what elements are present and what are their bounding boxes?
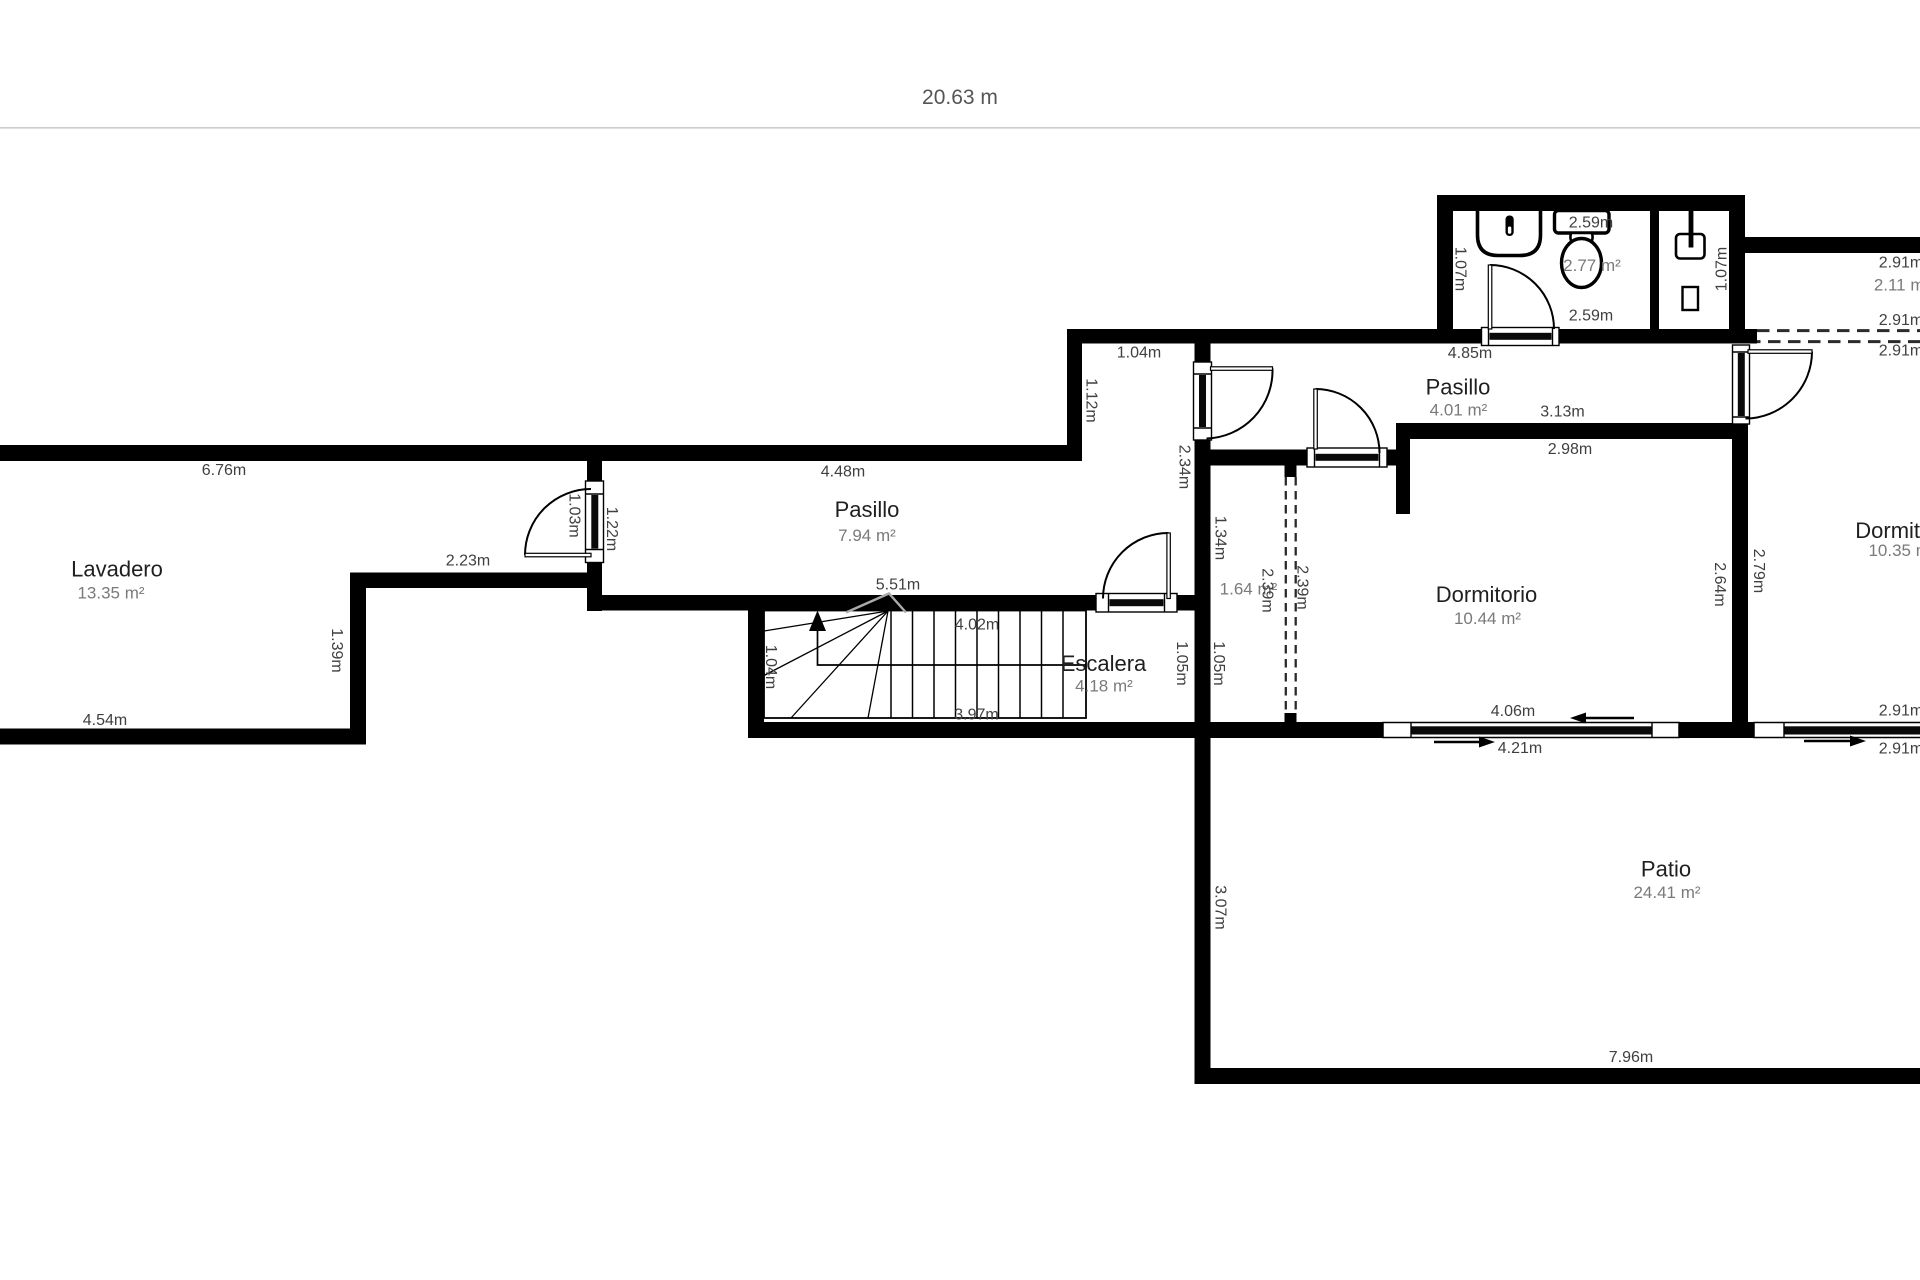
svg-text:1.07m: 1.07m xyxy=(1714,247,1731,291)
svg-text:5.51m: 5.51m xyxy=(876,577,920,594)
svg-text:20.63 m: 20.63 m xyxy=(922,86,998,109)
svg-text:1.03m: 1.03m xyxy=(566,493,583,537)
svg-text:Dormitorio: Dormitorio xyxy=(1436,582,1537,607)
svg-text:4.18 m²: 4.18 m² xyxy=(1075,677,1133,696)
svg-text:4.54m: 4.54m xyxy=(83,712,127,729)
svg-text:Pasillo: Pasillo xyxy=(1426,375,1491,400)
svg-text:10.35 m²: 10.35 m² xyxy=(1868,541,1920,560)
svg-text:Escalera: Escalera xyxy=(1061,651,1147,676)
svg-text:2.64m: 2.64m xyxy=(1711,562,1728,606)
svg-text:1.07m: 1.07m xyxy=(1452,247,1469,291)
svg-text:2.91m: 2.91m xyxy=(1879,312,1920,329)
svg-text:4.02m: 4.02m xyxy=(955,617,999,634)
svg-text:4.21m: 4.21m xyxy=(1498,740,1542,757)
svg-text:1.05m: 1.05m xyxy=(1210,641,1227,685)
svg-text:2.91m: 2.91m xyxy=(1879,741,1920,758)
svg-text:1.04m: 1.04m xyxy=(1117,345,1161,362)
svg-text:1.22m: 1.22m xyxy=(603,507,620,551)
svg-text:4.48m: 4.48m xyxy=(821,464,865,481)
svg-text:2.79m: 2.79m xyxy=(1750,549,1767,593)
svg-text:6.76m: 6.76m xyxy=(202,462,246,479)
svg-text:10.44 m²: 10.44 m² xyxy=(1454,609,1521,628)
svg-text:2.59m: 2.59m xyxy=(1569,215,1613,232)
svg-text:2.98m: 2.98m xyxy=(1548,441,1592,458)
svg-text:4.01 m²: 4.01 m² xyxy=(1430,401,1488,420)
svg-text:2.39m: 2.39m xyxy=(1294,565,1311,609)
svg-text:2.91m: 2.91m xyxy=(1879,343,1920,360)
svg-text:3.13m: 3.13m xyxy=(1540,404,1584,421)
svg-text:2.34m: 2.34m xyxy=(1176,445,1193,489)
svg-text:3.07m: 3.07m xyxy=(1212,885,1229,929)
svg-text:7.96m: 7.96m xyxy=(1609,1049,1653,1066)
svg-text:2.23m: 2.23m xyxy=(446,553,490,570)
svg-text:4.06m: 4.06m xyxy=(1491,703,1535,720)
svg-text:1.34m: 1.34m xyxy=(1212,516,1229,560)
svg-text:4.85m: 4.85m xyxy=(1448,345,1492,362)
svg-text:1.12m: 1.12m xyxy=(1083,378,1100,422)
svg-text:Pasillo: Pasillo xyxy=(835,497,900,522)
svg-text:2.39m: 2.39m xyxy=(1259,568,1276,612)
svg-text:3.97m: 3.97m xyxy=(954,707,998,724)
svg-text:1.39m: 1.39m xyxy=(328,628,345,672)
svg-text:24.41 m²: 24.41 m² xyxy=(1633,883,1700,902)
svg-text:2.77 m²: 2.77 m² xyxy=(1563,256,1621,275)
svg-text:Patio: Patio xyxy=(1641,857,1691,882)
svg-text:2.11 m²: 2.11 m² xyxy=(1874,276,1920,295)
svg-text:2.91m: 2.91m xyxy=(1879,703,1920,720)
svg-text:2.91m: 2.91m xyxy=(1879,255,1920,272)
svg-text:1.05m: 1.05m xyxy=(1173,641,1190,685)
svg-text:2.59m: 2.59m xyxy=(1569,308,1613,325)
svg-text:Lavadero: Lavadero xyxy=(71,557,163,582)
svg-text:7.94 m²: 7.94 m² xyxy=(838,526,896,545)
svg-text:1.04m: 1.04m xyxy=(762,645,779,689)
svg-text:Dormitorio: Dormitorio xyxy=(1855,518,1920,543)
svg-text:13.35 m²: 13.35 m² xyxy=(77,584,144,603)
